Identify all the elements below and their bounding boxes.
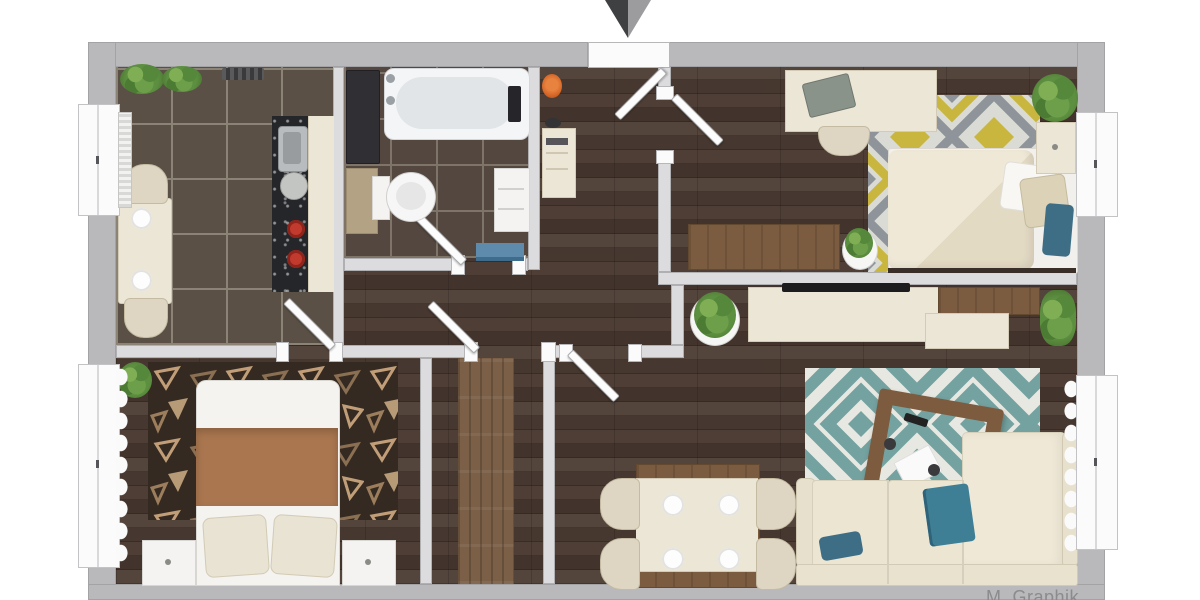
console-extension (925, 313, 1009, 349)
pillow-cream (270, 514, 338, 578)
watermark-text: M. Graphik (986, 587, 1079, 600)
stove-burner (287, 220, 305, 238)
nightstand-knob (365, 559, 371, 565)
sofa-seam (887, 480, 889, 584)
door-frame-cap (541, 342, 556, 362)
window-handle (96, 460, 99, 468)
dining-chair (600, 538, 640, 590)
media-shelf (938, 287, 1040, 315)
living-window (1076, 375, 1118, 550)
plate (131, 208, 152, 229)
brown-blanket (196, 428, 338, 506)
curtain (116, 366, 132, 562)
bed-frame-edge (888, 268, 1076, 273)
living-plant (694, 292, 736, 338)
kitchen-window (78, 104, 120, 216)
tv-console (748, 287, 940, 342)
plate (718, 548, 740, 570)
bedroom-left-window (78, 364, 120, 568)
pillow-teal (1042, 203, 1074, 257)
pillow-cream (202, 514, 270, 578)
bath-faucet-knob (386, 96, 395, 105)
dining-chair (600, 478, 640, 530)
nightstand-knob (1052, 144, 1058, 150)
hall-living-wall (671, 285, 684, 345)
coaster (928, 464, 940, 476)
potted-plant (845, 228, 873, 258)
plate (662, 494, 684, 516)
wood-sideboard (688, 224, 840, 270)
plate (662, 548, 684, 570)
shelf-line (498, 208, 524, 210)
bathtub-basin (396, 77, 514, 129)
toilet-seat (396, 182, 426, 210)
corridor-right-wall (543, 358, 555, 584)
kitchen-cabinets (308, 116, 334, 292)
console-item (546, 138, 568, 145)
windowsill-plant (162, 66, 202, 92)
plate (131, 270, 152, 291)
sofa-chaise (962, 432, 1066, 568)
top-wall-left (88, 42, 588, 67)
shelf-line (498, 188, 524, 190)
bottom-wall (88, 584, 1105, 600)
console-shelf-line (546, 152, 568, 154)
sofa-backrest (796, 564, 1078, 586)
bath-mat (476, 243, 524, 261)
door-frame-cap (628, 344, 642, 362)
nightstand-knob (165, 559, 171, 565)
window-handle (96, 156, 99, 164)
top-wall-right (668, 42, 1105, 67)
console-shelf-line (546, 168, 568, 170)
floor-plan-rendering: M. Graphik (0, 0, 1200, 600)
entrance-arrow-icon (604, 0, 654, 40)
window-handle (1094, 160, 1097, 168)
bath-tray (508, 86, 521, 122)
mid-wall-a (331, 345, 475, 358)
bathroom-shelf-unit (494, 168, 530, 232)
vent-grille (222, 68, 264, 80)
sink-basin (283, 132, 301, 164)
hall-bedroom-wall-bottom (658, 162, 671, 272)
teal-throw-blanket (922, 483, 976, 547)
hallway-runner-rug (458, 358, 514, 584)
tv (782, 283, 910, 292)
dining-chair (756, 478, 796, 530)
orange-vase (542, 74, 562, 98)
bathroom-tall-unit (346, 70, 380, 164)
kitchen-chair (124, 298, 168, 338)
window-handle (1094, 458, 1097, 466)
dish-drainer (280, 172, 308, 200)
plate (718, 494, 740, 516)
grass-plant (1040, 290, 1076, 346)
bedroom-right-window (1076, 112, 1118, 217)
bathroom-bottom-wall-left (344, 258, 462, 271)
entrance-door-sill (588, 42, 670, 68)
door-frame-cap (656, 150, 674, 164)
kitchen-bathroom-wall (333, 67, 344, 345)
coaster (884, 438, 896, 450)
bedroom-plant (1032, 74, 1078, 122)
dark-dish (545, 118, 561, 128)
radiator (118, 112, 132, 208)
corridor-left-wall (420, 358, 432, 584)
bath-faucet (386, 74, 395, 83)
stove-burner (287, 250, 305, 268)
dining-chair (756, 538, 796, 590)
kitchen-bottom-wall (116, 345, 286, 358)
door-frame-cap (276, 342, 289, 362)
curtain (1060, 378, 1076, 556)
windowsill-plant (120, 64, 164, 94)
